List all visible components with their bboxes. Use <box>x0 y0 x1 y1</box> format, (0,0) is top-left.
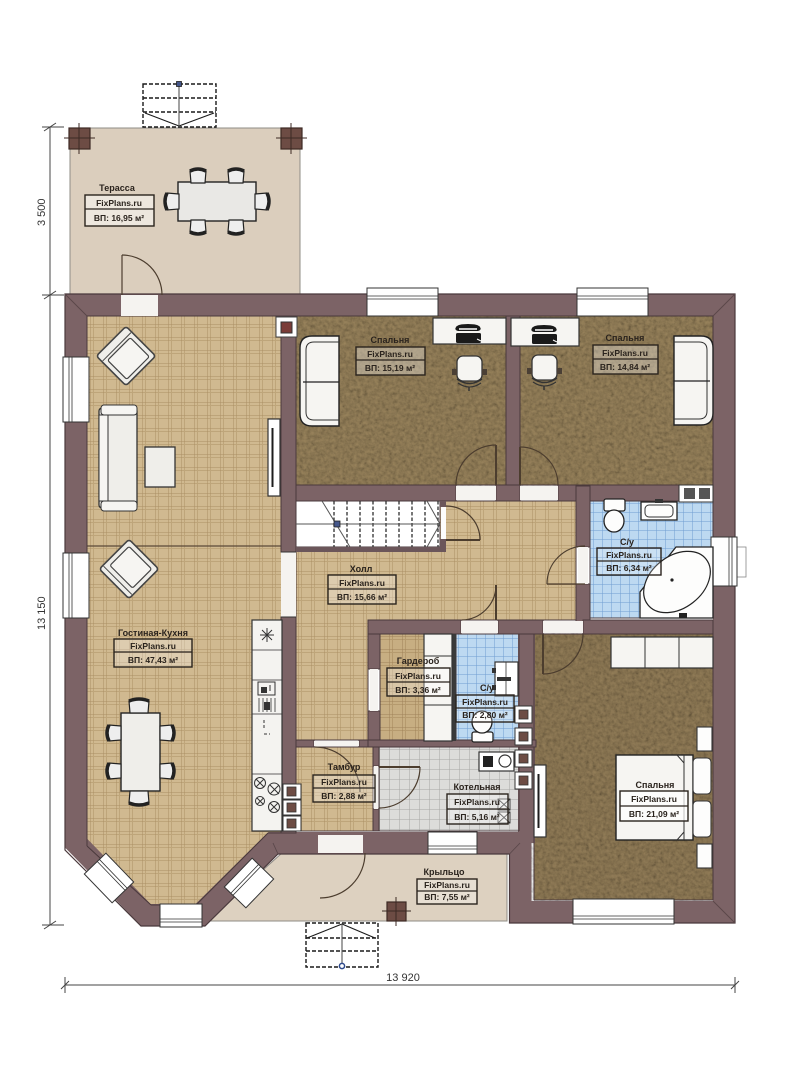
svg-text:ВП: 2,88 м²: ВП: 2,88 м² <box>321 791 367 801</box>
svg-text:ВП: 3,36 м²: ВП: 3,36 м² <box>395 685 441 695</box>
svg-text:Спальня: Спальня <box>371 335 410 345</box>
svg-text:FixPlans.ru: FixPlans.ru <box>606 550 652 560</box>
svg-text:FixPlans.ru: FixPlans.ru <box>96 198 142 208</box>
svg-text:Тамбур: Тамбур <box>328 762 361 772</box>
svg-text:Гостиная-Кухня: Гостиная-Кухня <box>118 628 188 638</box>
svg-text:ВП: 7,55 м²: ВП: 7,55 м² <box>424 892 470 902</box>
svg-text:Котельная: Котельная <box>453 782 500 792</box>
svg-text:Спальня: Спальня <box>606 333 645 343</box>
svg-text:ВП: 14,84 м²: ВП: 14,84 м² <box>600 362 650 372</box>
svg-text:Холл: Холл <box>350 564 373 574</box>
svg-text:ВП: 5,16 м²: ВП: 5,16 м² <box>454 812 500 822</box>
svg-text:ВП: 15,19 м²: ВП: 15,19 м² <box>365 363 415 373</box>
svg-text:Крыльцо: Крыльцо <box>424 867 465 877</box>
svg-text:С/у: С/у <box>480 683 494 693</box>
svg-text:FixPlans.ru: FixPlans.ru <box>462 697 508 707</box>
svg-text:FixPlans.ru: FixPlans.ru <box>395 671 441 681</box>
svg-text:FixPlans.ru: FixPlans.ru <box>367 349 413 359</box>
svg-text:ВП: 16,95 м²: ВП: 16,95 м² <box>94 213 144 223</box>
svg-text:ВП: 6,34 м²: ВП: 6,34 м² <box>606 563 652 573</box>
svg-text:FixPlans.ru: FixPlans.ru <box>454 797 500 807</box>
svg-text:FixPlans.ru: FixPlans.ru <box>321 777 367 787</box>
svg-text:Гардероб: Гардероб <box>397 656 440 666</box>
svg-text:FixPlans.ru: FixPlans.ru <box>631 794 677 804</box>
svg-text:ВП: 21,09 м²: ВП: 21,09 м² <box>629 809 679 819</box>
svg-text:С/у: С/у <box>620 537 634 547</box>
svg-text:ВП: 47,43 м²: ВП: 47,43 м² <box>128 655 178 665</box>
svg-text:Терасса: Терасса <box>99 183 136 193</box>
svg-text:ВП: 2,80 м²: ВП: 2,80 м² <box>462 710 508 720</box>
svg-text:FixPlans.ru: FixPlans.ru <box>602 348 648 358</box>
svg-text:FixPlans.ru: FixPlans.ru <box>339 578 385 588</box>
svg-text:ВП: 15,66 м²: ВП: 15,66 м² <box>337 592 387 602</box>
svg-text:FixPlans.ru: FixPlans.ru <box>130 641 176 651</box>
svg-text:Спальня: Спальня <box>636 780 675 790</box>
svg-text:FixPlans.ru: FixPlans.ru <box>424 880 470 890</box>
svg-text:3 500: 3 500 <box>36 198 48 226</box>
svg-text:13 920: 13 920 <box>386 972 420 984</box>
svg-text:13 150: 13 150 <box>36 596 48 630</box>
